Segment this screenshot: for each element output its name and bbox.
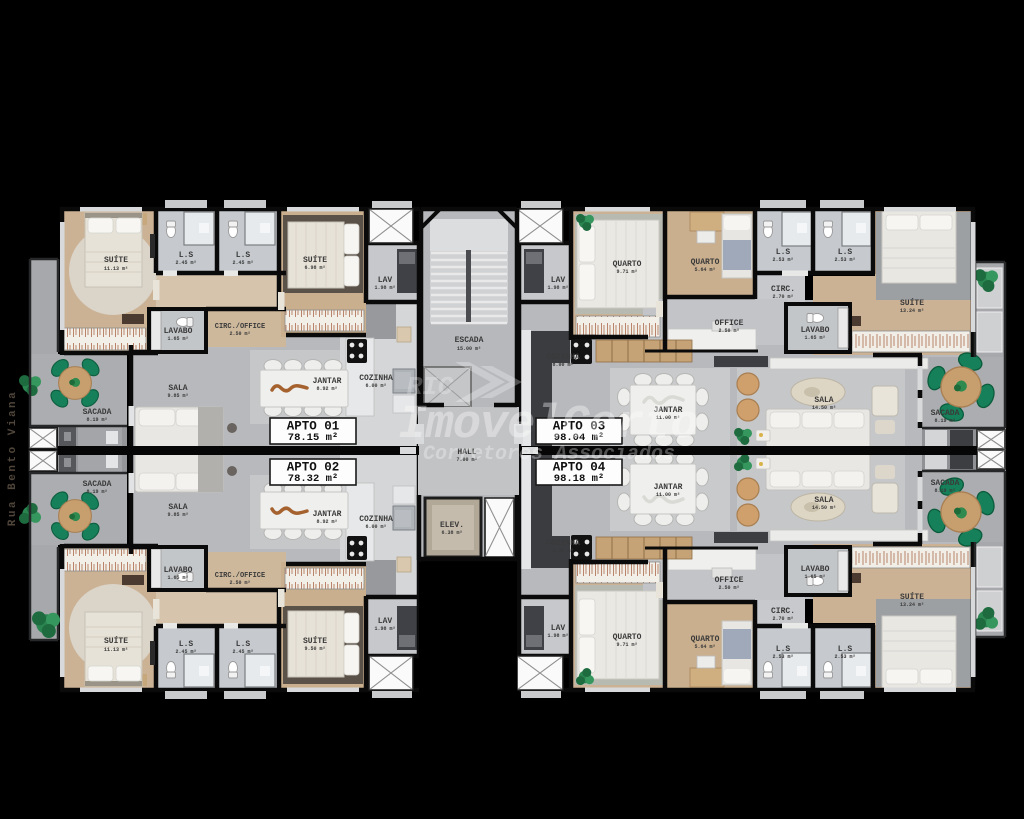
svg-text:LAVABO: LAVABO: [164, 566, 193, 575]
svg-text:13.24 m²: 13.24 m²: [900, 308, 924, 314]
svg-text:9.50 m²: 9.50 m²: [304, 646, 325, 652]
svg-text:6.38 m²: 6.38 m²: [441, 530, 462, 536]
svg-text:LAVABO: LAVABO: [801, 565, 830, 574]
svg-text:2.70 m²: 2.70 m²: [772, 616, 793, 622]
svg-text:1.98 m²: 1.98 m²: [547, 285, 568, 291]
svg-text:2.45 m²: 2.45 m²: [175, 260, 196, 266]
svg-text:QUARTO: QUARTO: [613, 260, 642, 269]
svg-text:JANTAR: JANTAR: [654, 483, 683, 492]
svg-text:SALA: SALA: [168, 384, 187, 393]
svg-text:OFFICE: OFFICE: [715, 576, 744, 585]
svg-text:1.98 m²: 1.98 m²: [374, 626, 395, 632]
svg-text:1.65 m²: 1.65 m²: [167, 575, 188, 581]
svg-text:11.13 m²: 11.13 m²: [104, 647, 128, 653]
svg-text:SACADA: SACADA: [83, 480, 112, 489]
svg-text:2.53 m²: 2.53 m²: [834, 654, 855, 660]
svg-text:L.S: L.S: [776, 645, 791, 654]
svg-text:SUÍTE: SUÍTE: [303, 637, 327, 646]
svg-text:SUÍTE: SUÍTE: [900, 593, 924, 602]
svg-text:2.50 m²: 2.50 m²: [229, 580, 250, 586]
svg-text:2.50 m²: 2.50 m²: [718, 328, 739, 334]
svg-text:8.92 m²: 8.92 m²: [316, 519, 337, 525]
svg-text:11.13 m²: 11.13 m²: [104, 266, 128, 272]
svg-text:L.S: L.S: [179, 640, 194, 649]
svg-text:8.00 m²: 8.00 m²: [552, 548, 573, 554]
svg-text:SALA: SALA: [814, 496, 833, 505]
svg-text:LAV: LAV: [551, 276, 566, 285]
svg-text:8.19 m²: 8.19 m²: [934, 488, 955, 494]
svg-text:LAVABO: LAVABO: [801, 326, 830, 335]
svg-text:LAV: LAV: [378, 617, 393, 626]
svg-text:1.98 m²: 1.98 m²: [547, 633, 568, 639]
svg-text:SUÍTE: SUÍTE: [104, 637, 128, 646]
svg-text:SACADA: SACADA: [931, 479, 960, 488]
svg-text:LAV: LAV: [551, 624, 566, 633]
svg-text:JANTAR: JANTAR: [313, 510, 342, 519]
svg-text:Corretores Associados: Corretores Associados: [423, 443, 675, 466]
svg-text:5.64 m²: 5.64 m²: [694, 644, 715, 650]
svg-text:6.00 m²: 6.00 m²: [365, 383, 386, 389]
svg-text:LAV: LAV: [378, 276, 393, 285]
svg-text:8.19 m²: 8.19 m²: [86, 417, 107, 423]
svg-text:11.00 m²: 11.00 m²: [656, 492, 680, 498]
svg-text:2.53 m²: 2.53 m²: [834, 257, 855, 263]
svg-text:COZINHA: COZINHA: [359, 515, 393, 524]
svg-text:8.19 m²: 8.19 m²: [86, 489, 107, 495]
svg-text:1.65 m²: 1.65 m²: [804, 335, 825, 341]
svg-text:1.98 m²: 1.98 m²: [374, 285, 395, 291]
svg-text:14.50 m²: 14.50 m²: [812, 505, 836, 511]
svg-text:SACADA: SACADA: [931, 409, 960, 418]
svg-text:78.32 m²: 78.32 m²: [288, 473, 338, 485]
svg-text:8.19 m²: 8.19 m²: [934, 418, 955, 424]
svg-text:9.85 m²: 9.85 m²: [167, 393, 188, 399]
svg-text:SALA: SALA: [814, 396, 833, 405]
svg-text:QUARTO: QUARTO: [613, 633, 642, 642]
svg-text:1.65 m²: 1.65 m²: [804, 574, 825, 580]
svg-text:9.71 m²: 9.71 m²: [616, 642, 637, 648]
svg-text:6.98 m²: 6.98 m²: [304, 265, 325, 271]
svg-text:L.S: L.S: [838, 645, 853, 654]
svg-text:15.00 m²: 15.00 m²: [457, 346, 481, 352]
svg-text:98.18 m²: 98.18 m²: [554, 473, 604, 485]
svg-text:SACADA: SACADA: [83, 408, 112, 417]
svg-text:SUÍTE: SUÍTE: [303, 256, 327, 265]
svg-text:CIRC./OFFICE: CIRC./OFFICE: [215, 572, 265, 580]
svg-text:8.00 m²: 8.00 m²: [552, 362, 573, 368]
svg-text:ESCADA: ESCADA: [455, 336, 484, 345]
svg-text:CIRC./OFFICE: CIRC./OFFICE: [215, 323, 265, 331]
svg-text:14.50 m²: 14.50 m²: [812, 405, 836, 411]
svg-text:78.15 m²: 78.15 m²: [288, 432, 338, 444]
svg-text:L.S: L.S: [236, 640, 251, 649]
svg-text:9.85 m²: 9.85 m²: [167, 512, 188, 518]
svg-text:SALA: SALA: [168, 503, 187, 512]
svg-text:RIC: RIC: [407, 372, 454, 402]
svg-text:CIRC.: CIRC.: [771, 285, 795, 294]
svg-text:COZINHA: COZINHA: [359, 374, 393, 383]
svg-text:9.71 m²: 9.71 m²: [616, 269, 637, 275]
svg-text:QUARTO: QUARTO: [691, 635, 720, 644]
svg-text:2.50 m²: 2.50 m²: [229, 331, 250, 337]
svg-text:COZINHA: COZINHA: [546, 353, 580, 362]
svg-text:L.S: L.S: [776, 248, 791, 257]
svg-text:5.64 m²: 5.64 m²: [694, 267, 715, 273]
svg-text:L.S: L.S: [236, 251, 251, 260]
svg-text:L.S: L.S: [838, 248, 853, 257]
svg-text:2.53 m²: 2.53 m²: [772, 257, 793, 263]
svg-text:LAVABO: LAVABO: [164, 327, 193, 336]
svg-text:OFFICE: OFFICE: [715, 319, 744, 328]
svg-text:2.70 m²: 2.70 m²: [772, 294, 793, 300]
svg-text:CIRC.: CIRC.: [771, 607, 795, 616]
svg-text:JANTAR: JANTAR: [313, 377, 342, 386]
svg-text:13.24 m²: 13.24 m²: [900, 602, 924, 608]
svg-text:2.45 m²: 2.45 m²: [232, 260, 253, 266]
svg-text:2.50 m²: 2.50 m²: [718, 585, 739, 591]
svg-text:SUÍTE: SUÍTE: [104, 256, 128, 265]
svg-text:6.00 m²: 6.00 m²: [365, 524, 386, 530]
svg-text:2.45 m²: 2.45 m²: [175, 649, 196, 655]
svg-text:Rua Bento Viana: Rua Bento Viana: [7, 390, 19, 527]
svg-text:SUÍTE: SUÍTE: [900, 299, 924, 308]
svg-text:L.S: L.S: [179, 251, 194, 260]
svg-text:ELEV.: ELEV.: [440, 521, 464, 530]
svg-text:2.45 m²: 2.45 m²: [232, 649, 253, 655]
svg-text:1.65 m²: 1.65 m²: [167, 336, 188, 342]
svg-text:COZINHA: COZINHA: [546, 539, 580, 548]
svg-text:8.92 m²: 8.92 m²: [316, 386, 337, 392]
svg-text:2.53 m²: 2.53 m²: [772, 654, 793, 660]
svg-text:QUARTO: QUARTO: [691, 258, 720, 267]
